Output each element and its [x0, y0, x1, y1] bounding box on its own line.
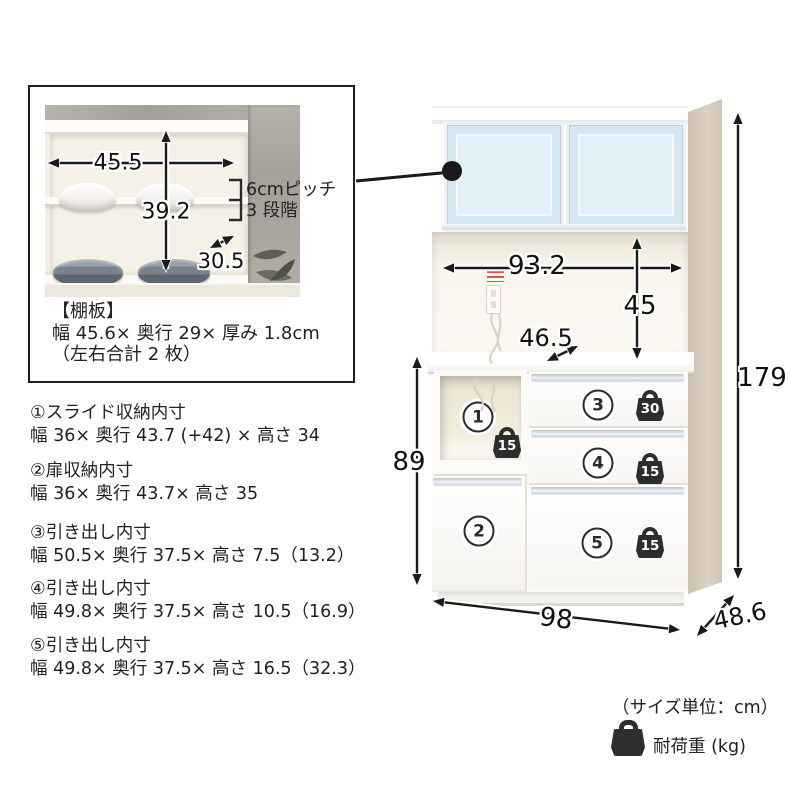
weight-bag-body: [611, 729, 645, 756]
spec-dims: 幅 49.8× 奥行 37.5× 高さ 10.5（16.9）: [30, 601, 370, 624]
upper-cabinet: [432, 106, 688, 232]
load-value: 30: [636, 398, 664, 421]
dim-inner-width: 93.2: [508, 251, 566, 281]
spec-dims: 幅 36× 奥行 43.7 (+42) × 高さ 34: [30, 425, 370, 448]
glass-frost-panel: [456, 134, 552, 216]
pitch-line-2: 3 段階: [246, 201, 336, 222]
load-badge-drawer3: 30: [636, 390, 664, 421]
load-legend-label: 耐荷重 (kg): [653, 733, 746, 758]
slot-under-shelf: [434, 466, 527, 476]
spec-dims: 幅 49.8× 奥行 37.5× 高さ 16.5（32.3）: [30, 658, 370, 681]
section-badge-1: 1: [463, 402, 494, 433]
spec-title: ②扉収納内寸: [30, 460, 370, 483]
pitch-line-1: 6cmピッチ: [246, 180, 336, 201]
product-dimension-figure: 6cmピッチ 3 段階 【棚板】 幅 45.6× 奥行 29× 厚み 1.8cm…: [0, 0, 790, 790]
spec-title: ④引き出し内寸: [30, 578, 370, 601]
glass-frost-panel: [578, 134, 674, 216]
drawer-handle: [531, 374, 684, 381]
dim-total-width: 98: [538, 602, 575, 636]
note-line-2: （左右合計 2 枚）: [52, 344, 352, 366]
section-badge-4: 4: [583, 448, 614, 479]
load-value: 15: [636, 461, 664, 484]
dim-shelf-depth: 30.5: [198, 249, 245, 273]
outlet-label: [487, 271, 504, 282]
dim-total-height: 179: [737, 363, 787, 393]
spec-item-1: ①スライド収納内寸 幅 36× 奥行 43.7 (+42) × 高さ 34: [30, 402, 370, 447]
load-value: 15: [636, 535, 664, 558]
load-badge-drawer4: 15: [636, 453, 664, 484]
shelf-top-panel: [45, 120, 248, 134]
dim-counter-depth: 46.5: [519, 324, 572, 352]
drawer-handle: [531, 430, 684, 437]
spec-title: ①スライド収納内寸: [30, 402, 370, 425]
spec-item-5: ⑤引き出し内寸 幅 49.8× 奥行 37.5× 高さ 16.5（32.3）: [30, 635, 370, 680]
shelf-pitch-note: 6cmピッチ 3 段階: [246, 180, 336, 221]
door-handle: [433, 478, 522, 485]
cabinet-side-panel: [688, 99, 722, 594]
spec-dims: 幅 50.5× 奥行 37.5× 高さ 7.5（13.2）: [30, 545, 370, 568]
dim-inner-height: 45: [623, 291, 656, 321]
glass-door-bottom-rail: [442, 224, 686, 230]
shelf-inset-panel: 6cmピッチ 3 段階 【棚板】 幅 45.6× 奥行 29× 厚み 1.8cm…: [28, 85, 355, 383]
white-bowl: [59, 183, 116, 212]
section-number: 4: [592, 453, 604, 473]
size-unit-note: （サイズ単位：cm）: [612, 694, 778, 719]
spec-title: ⑤引き出し内寸: [30, 635, 370, 658]
section-badge-3: 3: [583, 390, 614, 421]
spec-dims: 幅 36× 奥行 43.7× 高さ 35: [30, 483, 370, 506]
dim-lower-height: 89: [392, 447, 425, 477]
dim-shelf-width: 45.5: [94, 151, 143, 176]
spec-title: ③引き出し内寸: [30, 522, 370, 545]
glass-door-left: [444, 122, 564, 232]
load-legend-icon: [611, 720, 645, 756]
dim-total-depth: 48.6: [711, 597, 769, 635]
section-number: 3: [592, 395, 604, 415]
drawer-handle: [531, 487, 684, 494]
spec-item-3: ③引き出し内寸 幅 50.5× 奥行 37.5× 高さ 7.5（13.2）: [30, 522, 370, 567]
section-number: 5: [591, 533, 603, 553]
note-line-1: 幅 45.6× 奥行 29× 厚み 1.8cm: [52, 323, 352, 345]
shelf-counter: [45, 283, 300, 297]
glass-door-right: [566, 122, 686, 232]
shelf-board-note: 【棚板】 幅 45.6× 奥行 29× 厚み 1.8cm （左右合計 2 枚）: [52, 301, 352, 366]
spec-item-2: ②扉収納内寸 幅 36× 奥行 43.7× 高さ 35: [30, 460, 370, 505]
section-number: 2: [473, 521, 485, 541]
spec-item-4: ④引き出し内寸 幅 49.8× 奥行 37.5× 高さ 10.5（16.9）: [30, 578, 370, 623]
section-badge-5: 5: [582, 528, 613, 559]
power-outlet: [486, 285, 501, 314]
load-badge-drawer5: 15: [636, 527, 664, 558]
note-title: 【棚板】: [52, 301, 352, 323]
section-number: 1: [472, 407, 484, 427]
dim-shelf-height: 39.2: [142, 200, 191, 225]
load-badge-slot: 15: [493, 427, 521, 458]
section-badge-2: 2: [464, 516, 495, 547]
load-value: 15: [493, 435, 521, 458]
